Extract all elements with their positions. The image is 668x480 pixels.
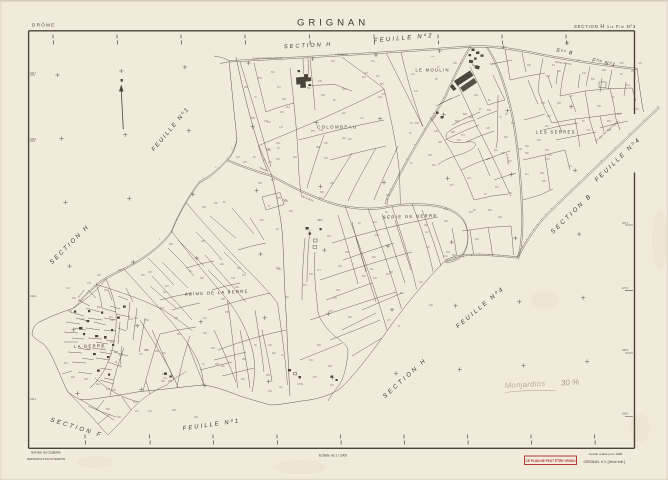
- svg-text:LE MOULIN: LE MOULIN: [416, 67, 450, 72]
- svg-text:226.8: 226.8: [622, 413, 629, 416]
- svg-text:GRIGNAN: GRIGNAN: [297, 17, 369, 28]
- svg-text:227.1: 227.1: [622, 222, 629, 225]
- svg-text:COLOMBEAU: COLOMBEAU: [317, 124, 358, 129]
- svg-text:Echelle de 1 / 2000: Echelle de 1 / 2000: [319, 453, 347, 457]
- svg-text:GRIGNAN. H.3. [2ème édit.]: GRIGNAN. H.3. [2ème édit.]: [584, 460, 625, 464]
- svg-text:DRÔME: DRÔME: [32, 21, 56, 27]
- svg-text:Feuille refaite pour 1966: Feuille refaite pour 1966: [589, 452, 623, 456]
- svg-text:243.6: 243.6: [30, 138, 37, 141]
- svg-text:30 %: 30 %: [561, 377, 580, 387]
- svg-text:226.9: 226.9: [622, 349, 629, 352]
- svg-text:243.2: 243.2: [30, 398, 37, 401]
- svg-text:Chemin rural dit de Grignan: Chemin rural dit de Grignan: [252, 57, 283, 61]
- svg-text:243.7: 243.7: [30, 72, 37, 75]
- svg-text:REPRODUCTION INTERDITE: REPRODUCTION INTERDITE: [27, 457, 65, 461]
- svg-text:CE PLAN NE PEUT ÊTRE VENDU: CE PLAN NE PEUT ÊTRE VENDU: [525, 458, 576, 463]
- svg-text:243.4: 243.4: [30, 295, 37, 298]
- svg-text:227.0: 227.0: [622, 287, 629, 290]
- svg-text:Service du Cadastre: Service du Cadastre: [31, 450, 61, 454]
- svg-text:LES SERRES: LES SERRES: [536, 129, 576, 134]
- svg-text:a Taulignan: a Taulignan: [335, 53, 348, 56]
